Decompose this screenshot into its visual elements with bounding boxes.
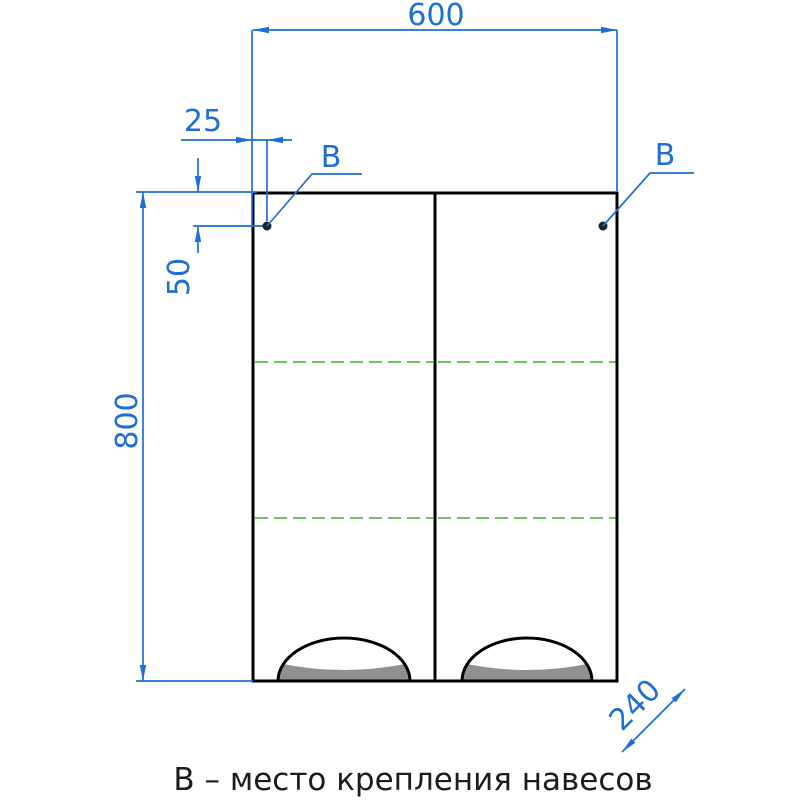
arrowhead-down-icon — [195, 176, 201, 192]
technical-drawing-page: 600 25 50 800 — [0, 0, 800, 800]
dim-hinge-offset-y: 50 — [162, 158, 265, 296]
door-arch-left — [278, 638, 410, 683]
hinge-markers: В В — [263, 138, 695, 231]
arrowhead-up-icon — [140, 192, 146, 208]
arrowhead-right-icon — [601, 27, 617, 33]
dimensions-layer: 600 25 50 800 — [110, 0, 685, 752]
arrowhead-left-icon — [253, 27, 269, 33]
cabinet-drawing-canvas: 600 25 50 800 — [0, 0, 800, 800]
dim-width-label: 600 — [407, 0, 464, 33]
marker-label-left: В — [321, 140, 342, 175]
door-arch-right — [462, 638, 592, 683]
arrowhead-inward-right-icon — [236, 137, 252, 143]
arrowhead-down-icon — [140, 665, 146, 681]
arrowhead-inward-left-icon — [267, 137, 283, 143]
caption: В – место крепления навесов — [173, 762, 652, 798]
dim-offset-x-label: 25 — [184, 104, 222, 139]
dim-offset-y-label: 50 — [162, 258, 197, 296]
arrowhead-up-icon — [195, 226, 201, 242]
leader-line-left — [267, 174, 362, 226]
cabinet-body — [253, 193, 617, 681]
marker-label-right: В — [655, 138, 676, 173]
dim-depth: 240 — [603, 673, 685, 752]
dim-height-label: 800 — [110, 392, 145, 449]
